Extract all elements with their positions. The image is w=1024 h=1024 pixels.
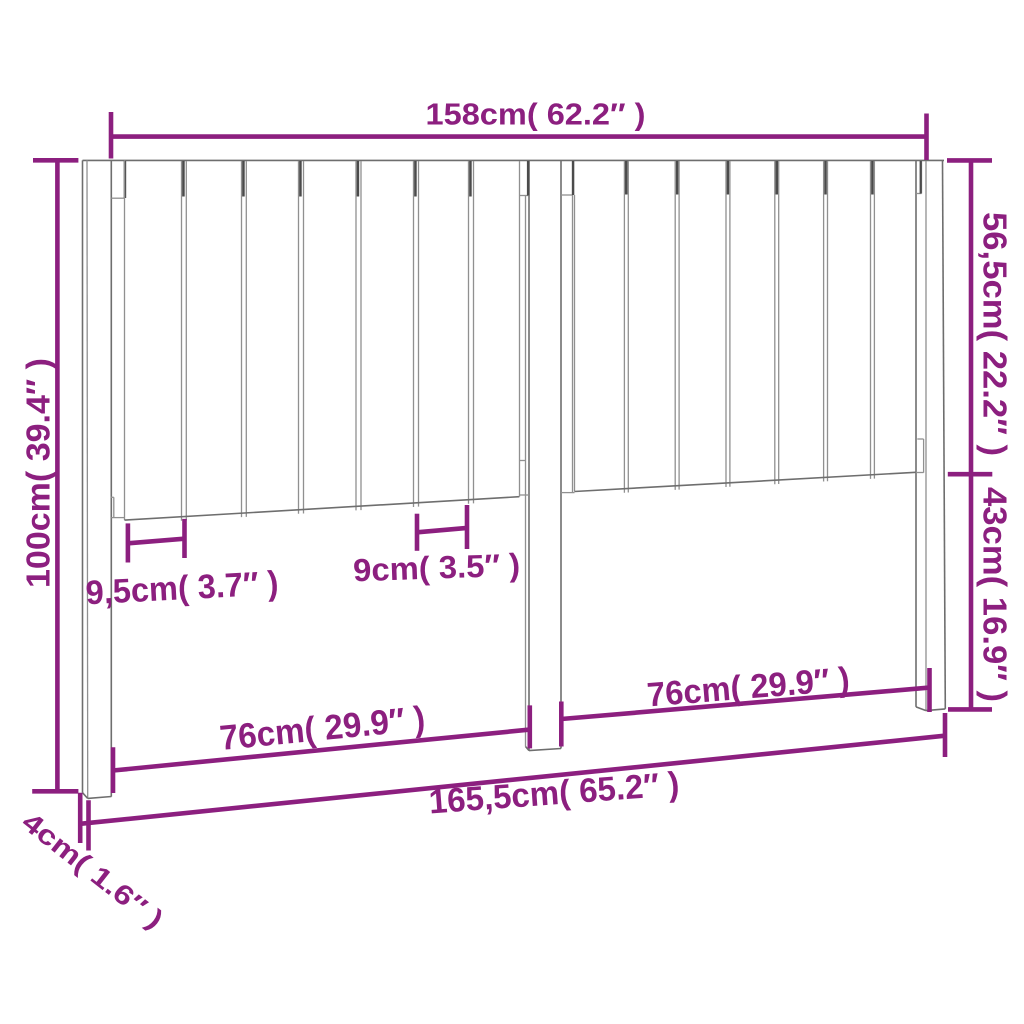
svg-text:9cm( 3.5″ ): 9cm( 3.5″ ): [353, 547, 521, 589]
svg-text:56,5cm( 22.2″ ): 56,5cm( 22.2″ ): [976, 212, 1013, 456]
svg-text:158cm( 62.2″ ): 158cm( 62.2″ ): [426, 96, 646, 131]
svg-text:100cm( 39.4″ ): 100cm( 39.4″ ): [20, 358, 57, 588]
svg-text:43cm( 16.9″ ): 43cm( 16.9″ ): [976, 487, 1013, 702]
